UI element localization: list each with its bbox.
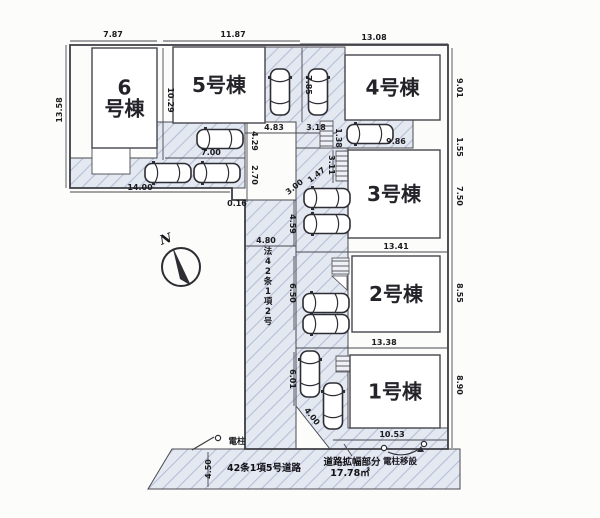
utility-pole-icon <box>421 441 426 446</box>
building-label: 2号棟 <box>369 282 424 306</box>
annotation-label: 42条1項5号道路 <box>227 462 301 474</box>
building-label: 5号棟 <box>192 73 247 97</box>
dimension-label: 13.41 <box>383 242 409 251</box>
dimension-label: 0.16 <box>227 199 247 208</box>
dimension-label: 8.90 <box>455 375 464 395</box>
dimension-label: 8.55 <box>455 283 464 303</box>
dimension-label: 4.50 <box>204 459 213 479</box>
bottom-road-area <box>148 449 460 489</box>
dimension-label: 4.29 <box>250 131 259 151</box>
dimension-label: 7.85 <box>304 75 313 95</box>
dimension-label: 2.70 <box>250 165 259 185</box>
dimension-label: 3.11 <box>327 155 336 175</box>
annotation-label: 17.78㎡ <box>330 467 370 479</box>
building-label: 3号棟 <box>367 182 422 206</box>
dimension-label: 9.01 <box>455 78 464 98</box>
dimension-label: 13.58 <box>55 97 64 123</box>
dimension-label: 4.80 <box>256 236 276 245</box>
porch <box>92 148 130 174</box>
north-label: N <box>157 230 175 249</box>
dimension-label: 10.29 <box>166 87 175 113</box>
dimension-label: 7.50 <box>455 186 464 206</box>
stairs-icon <box>336 151 349 181</box>
north-arrow-icon: N <box>157 230 200 286</box>
car-icon <box>303 312 349 336</box>
dimension-label: 10.53 <box>379 430 404 439</box>
utility-pole-icon <box>381 445 386 450</box>
car-icon <box>145 161 191 185</box>
stairs-icon <box>336 356 350 372</box>
dimension-label: 7.87 <box>103 30 123 39</box>
dimension-label: 4.83 <box>264 123 284 132</box>
dimension-label: 1.55 <box>455 137 464 157</box>
building-label: 4号棟 <box>366 76 421 100</box>
car-icon <box>268 69 292 115</box>
annotation-label: 電柱 <box>228 436 246 447</box>
utility-pole-icon <box>215 435 220 440</box>
dimension-label: 13.08 <box>361 33 387 42</box>
dimension-label: 9.86 <box>386 137 406 146</box>
car-icon <box>303 291 349 315</box>
site-plan-svg: 6号棟5号棟4号棟3号棟2号棟1号棟 N 7.8711.8713.0813.58… <box>0 0 600 518</box>
building-label: 号棟 <box>105 97 146 121</box>
car-icon <box>298 351 322 397</box>
dimension-label: 4.59 <box>288 214 297 234</box>
building-label: 1号棟 <box>368 380 423 404</box>
dimension-label: 13.38 <box>371 338 397 347</box>
dimension-label: 7.00 <box>201 148 221 157</box>
dimension-label: 6.01 <box>288 369 297 389</box>
annotation-label: 道路拡幅部分 <box>323 456 381 468</box>
dimension-label: 1.38 <box>334 128 343 148</box>
dimension-label: 11.87 <box>220 30 245 39</box>
dimension-label: 6.50 <box>288 283 297 303</box>
car-icon <box>304 186 350 210</box>
dimension-label: 3.18 <box>306 123 326 132</box>
annotation-label: 電柱移設 <box>383 456 418 467</box>
site-plan-page: 6号棟5号棟4号棟3号棟2号棟1号棟 N 7.8711.8713.0813.58… <box>0 0 600 518</box>
corner-cut-line <box>192 437 214 450</box>
dimension-label: 14.00 <box>127 183 153 192</box>
stairs-icon <box>332 258 349 274</box>
car-icon <box>321 383 345 429</box>
car-icon <box>194 161 240 185</box>
car-icon <box>304 212 350 236</box>
